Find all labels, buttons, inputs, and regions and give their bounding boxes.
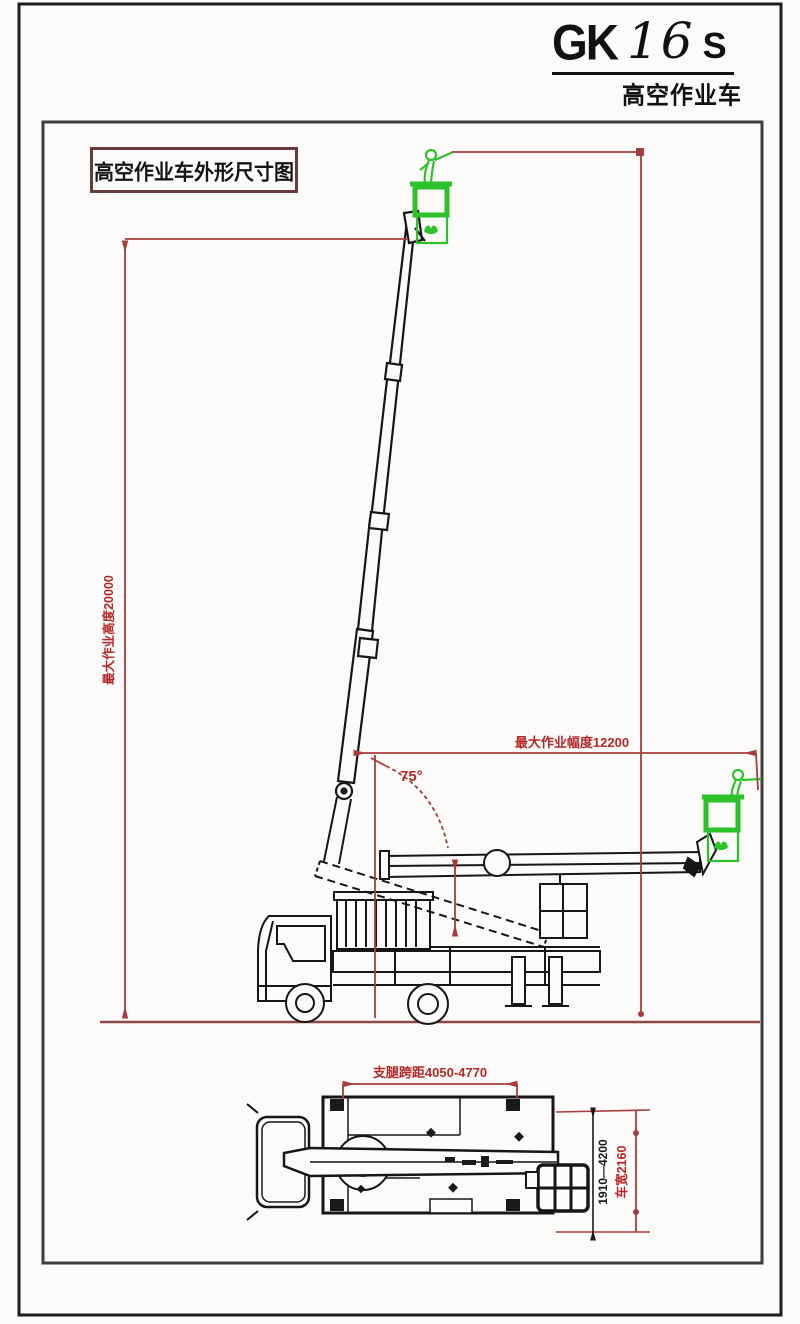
basket-logo-icon <box>424 225 438 234</box>
drawing-sheet: 最大作业高度20000 最大作业幅度12200 75° <box>0 0 800 1324</box>
logo-s: S <box>703 25 727 67</box>
work-basket-top <box>410 150 453 243</box>
truck-side-view <box>258 797 716 1024</box>
logo-16: 16 <box>627 12 695 70</box>
top-view: 支腿跨距4050-4770 1910—4200 车宽2160 <box>247 1065 650 1240</box>
drawing-title: 高空作业车外形尺寸图 <box>94 155 294 185</box>
max-height-label: 最大作业高度20000 <box>101 575 116 685</box>
outrigger-span-label: 支腿跨距4050-4770 <box>372 1065 487 1080</box>
side-view: 最大作业高度20000 最大作业幅度12200 75° <box>100 148 761 1024</box>
dimension-drawing: 最大作业高度20000 最大作业幅度12200 75° <box>0 0 800 1324</box>
drawing-title-box: 高空作业车外形尺寸图 <box>90 147 298 193</box>
width-label: 车宽2160 <box>614 1146 629 1199</box>
operator-figure-icon <box>420 150 453 186</box>
truck-top-view <box>247 1097 588 1220</box>
slew-range-label: 1910—4200 <box>596 1139 610 1205</box>
logo-gk: GK <box>552 13 617 71</box>
logo-subtitle: 高空作业车 <box>552 75 742 111</box>
basket-logo-icon <box>714 841 728 850</box>
logo-model-row: GK 16 S <box>552 12 742 70</box>
side-view-dimensions <box>125 148 758 1018</box>
telescopic-boom <box>336 211 425 799</box>
max-radius-label: 最大作业幅度12200 <box>515 735 629 750</box>
brand-logo: GK 16 S 高空作业车 <box>552 12 742 110</box>
boom-angle-label: 75° <box>400 768 423 785</box>
